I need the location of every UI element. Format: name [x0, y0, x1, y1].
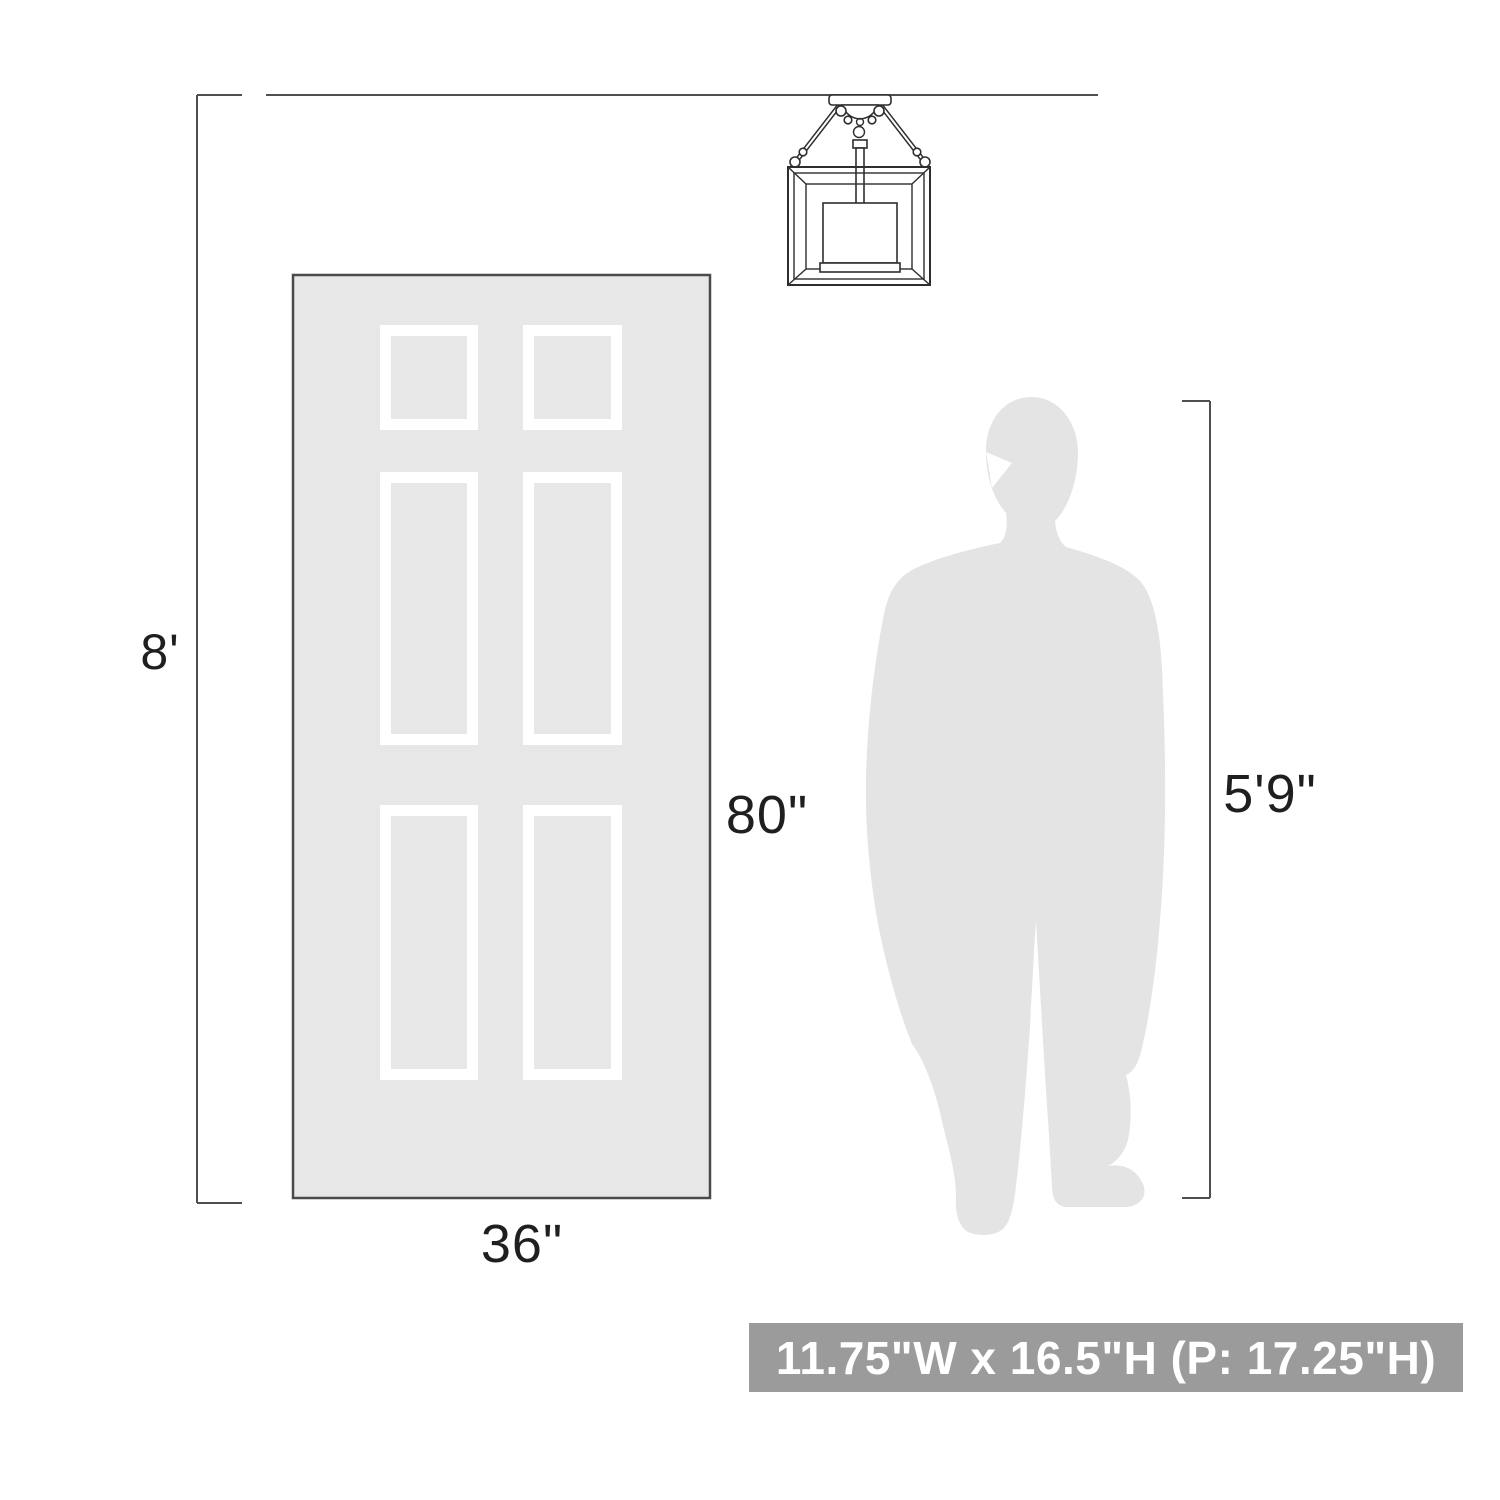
- ceiling-height-dimension-line: [197, 95, 242, 1203]
- scale-diagram-canvas: [0, 0, 1500, 1500]
- ceiling-height-label: 8': [140, 623, 179, 681]
- door-width-label: 36": [481, 1213, 563, 1275]
- person-height-label: 5'9": [1223, 763, 1317, 825]
- person-height-dimension-line: [1182, 401, 1210, 1198]
- fixture-dimensions-badge: 11.75"W x 16.5"H (P: 17.25"H): [749, 1323, 1463, 1392]
- door-silhouette: [293, 275, 710, 1198]
- door-height-label: 80": [726, 784, 808, 846]
- ceiling-light-line-drawing-icon: [788, 95, 930, 285]
- person-silhouette: [866, 397, 1165, 1235]
